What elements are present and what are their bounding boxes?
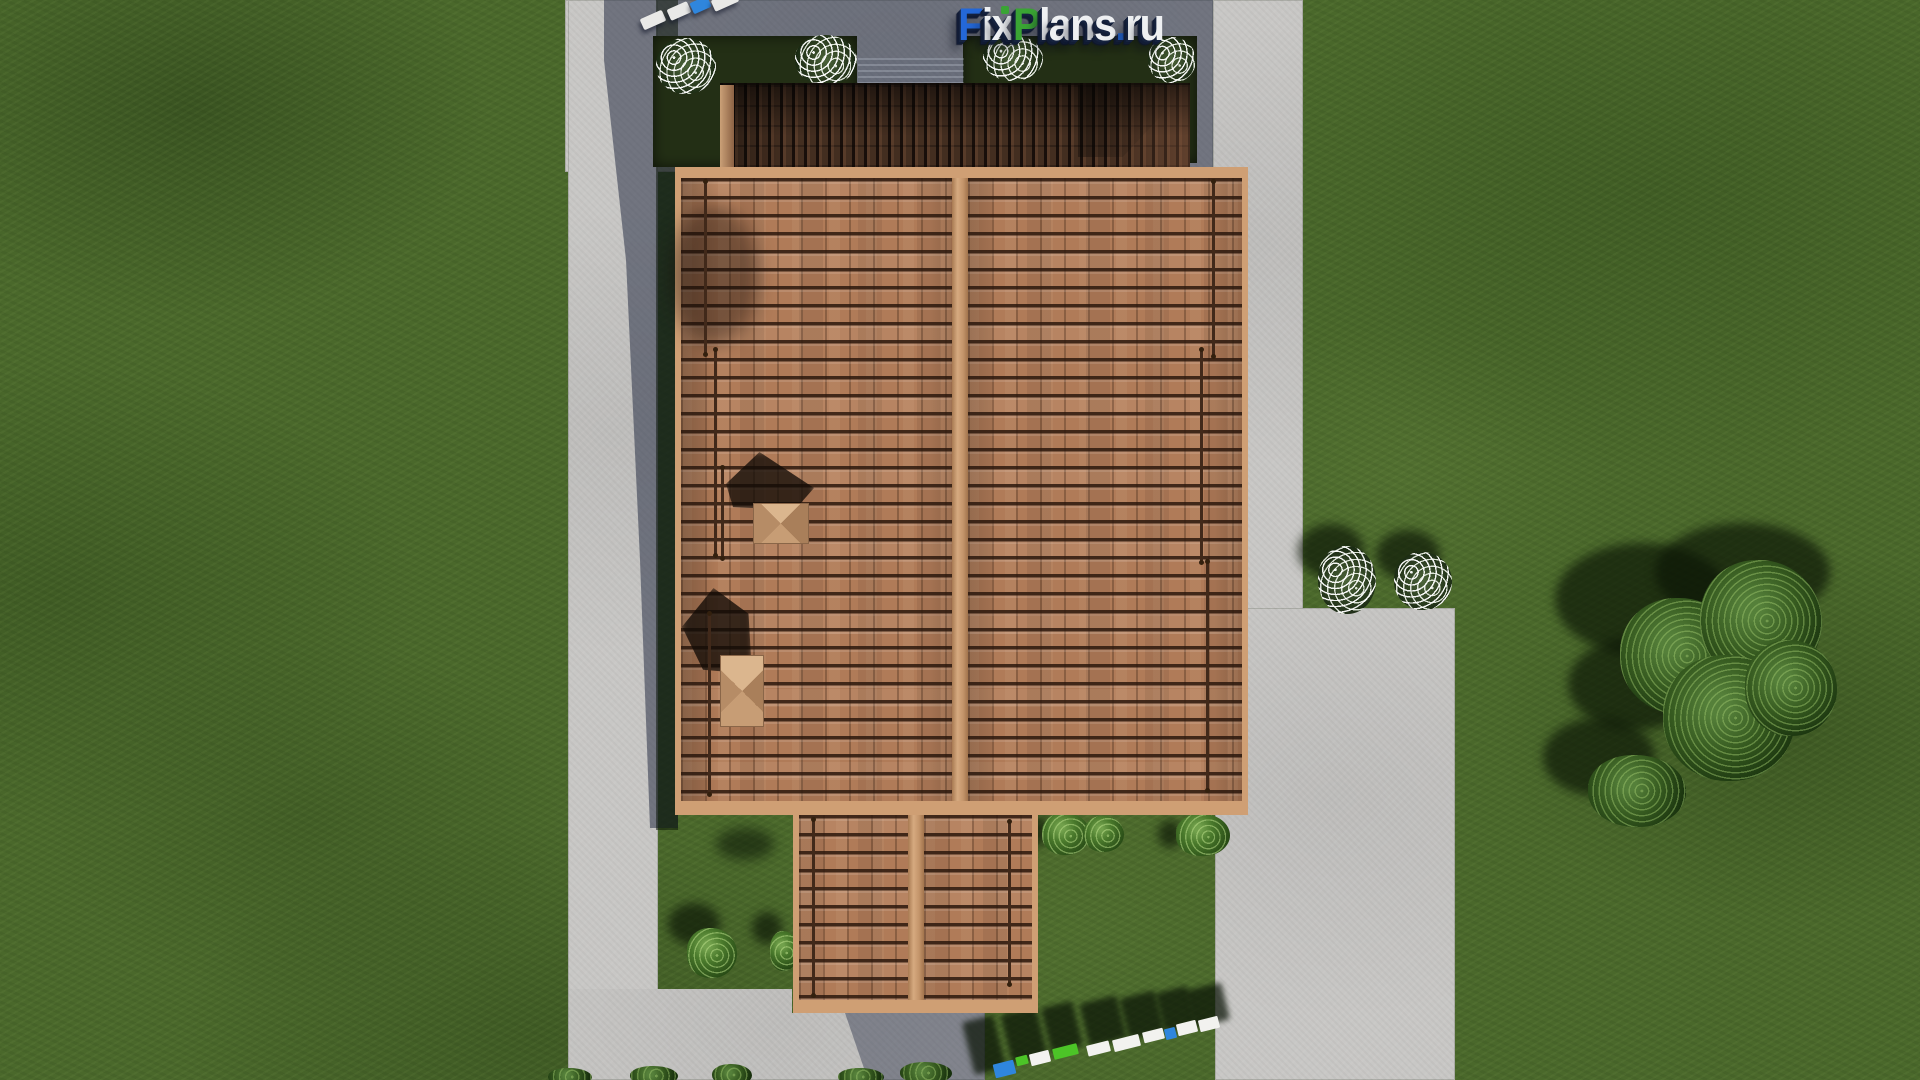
house-corner-shadow [716,828,774,860]
snow-guard-rail [1206,562,1209,790]
watermark-logo: FixPlans.ru [958,2,1163,47]
roof-soft-shadow [670,205,758,345]
logo-letter: s [1094,2,1115,47]
porch-ridge [908,815,924,1000]
porch-roof [793,815,1038,1013]
driveway [1215,608,1455,1080]
snow-guard-rail [708,614,711,794]
roof-ridge [952,178,968,801]
bush [1042,813,1090,855]
bush [630,1066,678,1080]
logo-letter: r [1125,2,1139,47]
bush [1588,755,1686,827]
logo-letter: a [1049,2,1070,47]
white-flower-bush [1318,546,1376,614]
white-flower-bush [795,35,857,85]
logo-letter: u [1140,2,1164,47]
logo-i-dot [1001,6,1009,14]
logo-letter: F [958,2,982,47]
bush [838,1068,884,1080]
site-plan-render: FixPlans.ru [0,0,1920,1080]
bush [712,1064,752,1080]
logo-letter: . [1115,2,1125,47]
snow-guard-rail [721,468,724,558]
logo-letter: i [982,2,992,47]
glass-canopy [858,58,964,84]
snow-guard-rail [1008,822,1011,984]
bush [687,928,737,978]
logo-letter: P [1013,2,1039,47]
snow-guard-rail [714,350,717,555]
chimney-cap [754,504,808,543]
logo-letter: l [1039,2,1049,47]
porch-slope-left [799,815,908,1000]
bush [1084,816,1124,852]
porch-slope-right [924,815,1032,1000]
logo-letter: n [1070,2,1094,47]
snow-guard-rail [1200,350,1203,562]
bush [548,1068,592,1080]
tree [1745,640,1837,736]
snow-guard-rail [812,820,815,995]
snow-guard-rail [1212,182,1215,356]
chimney-cap [721,656,763,726]
bush [1176,814,1230,856]
snow-guard-rail [704,182,707,354]
bush [900,1062,952,1080]
white-flower-bush [1394,552,1452,610]
white-flower-bush [656,38,716,94]
